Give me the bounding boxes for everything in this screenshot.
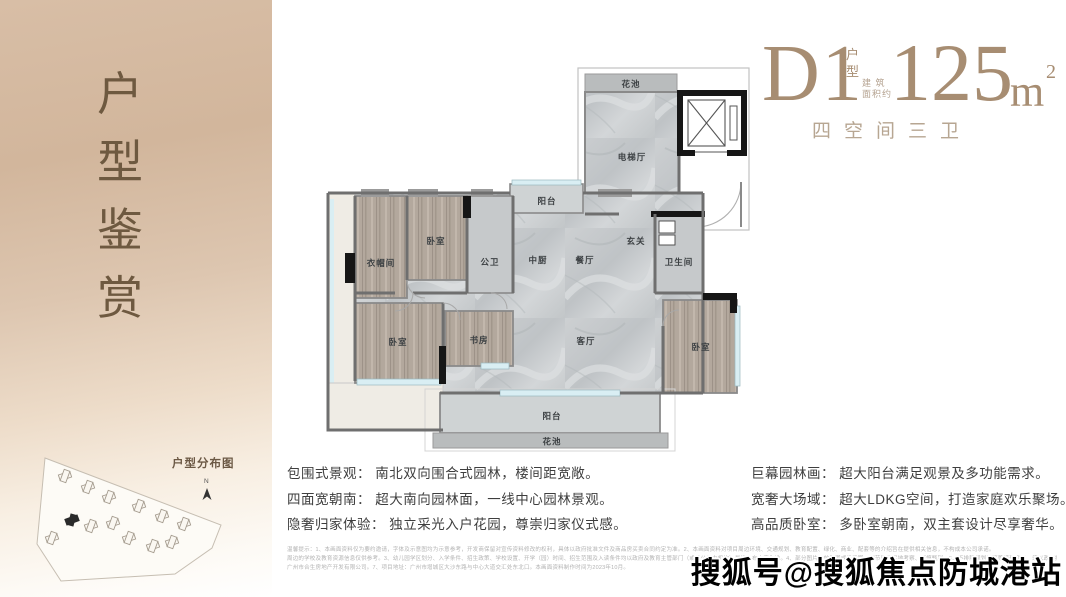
plan-subtitle: 四空间三卫: [812, 116, 972, 143]
feature-item: 包围式景观： 南北双向围合式园林，楼间距宽敞。: [287, 461, 627, 487]
feature-item: 高品质卧室： 多卧室朝南，双主套设计尽享奢华。: [751, 512, 1061, 538]
feature-item: 四面宽朝南： 超大南向园林面，一线中心园林景观。: [287, 487, 627, 513]
feature-item: 巨幕园林画： 超大阳台满足观景及多功能需求。: [751, 461, 1061, 487]
bath-niche: [659, 235, 675, 245]
area-prefix: 建 筑 面积约: [862, 78, 892, 100]
room-label-foyer: 玄关: [626, 236, 645, 246]
closet-floor: [355, 196, 407, 298]
page-title-char: 型: [97, 140, 143, 186]
window-living: [500, 390, 620, 396]
garden-southwest: [328, 383, 443, 430]
compass-icon: [203, 488, 212, 500]
plan-code-label: 户 型: [846, 48, 859, 78]
room-label-study: 书房: [469, 335, 488, 345]
watermark: 搜狐号@搜狐焦点防城港站: [691, 548, 1062, 592]
room-label-bedroom-west: 卧室: [388, 337, 407, 347]
feature-item: 宽奢大场域： 超大LDKG空间，打造家庭欢乐聚场。: [751, 487, 1061, 513]
room-label-bedroom-east: 卧室: [691, 342, 710, 352]
room-label-closet: 衣帽间: [367, 258, 396, 268]
sidebar: 户 型 鉴 赏: [0, 0, 272, 597]
compass-label: N: [204, 478, 209, 485]
area-unit: m: [1010, 70, 1044, 114]
room-label-balcony-north: 阳台: [537, 196, 556, 206]
page-title: 户 型 鉴 赏: [88, 72, 152, 322]
area-value: 125: [890, 32, 1013, 114]
page-title-char: 赏: [97, 276, 143, 322]
room-label-flowerbed-south: 花池: [542, 437, 561, 447]
bath-public-floor: [467, 196, 513, 293]
page: 户 型 鉴 赏: [0, 0, 1066, 597]
room-label-dining: 餐厅: [574, 255, 594, 265]
room-label-bath-public: 公卫: [480, 257, 499, 267]
plan-header: D1 户 型 建 筑 面积约 125 m 2 四空间三卫: [758, 30, 1058, 145]
plan-code-label-char: 户: [846, 48, 859, 61]
area-superscript: 2: [1046, 62, 1056, 82]
feature-list-right: 巨幕园林画： 超大阳台满足观景及多功能需求。 宽奢大场域： 超大LDKG空间，打…: [751, 461, 1061, 538]
window-west: [330, 199, 334, 399]
window-study: [481, 363, 509, 369]
feature-item: 隐奢归家体验： 独立采光入户花园，尊崇归家仪式感。: [287, 512, 627, 538]
feature-list-left: 包围式景观： 南北双向围合式园林，楼间距宽敞。 四面宽朝南： 超大南向园林面，一…: [287, 461, 627, 538]
wall-black-bath: [651, 211, 705, 217]
site-map: 户型分布图 N: [25, 440, 260, 592]
page-title-char: 户: [97, 72, 143, 118]
room-label-elevator-hall: 电梯厅: [618, 152, 647, 162]
site-map-title: 户型分布图: [172, 456, 235, 470]
page-title-char: 鉴: [97, 208, 143, 254]
room-label-bath-master: 卫生间: [665, 257, 694, 267]
elevator-icon: [677, 90, 747, 156]
window-balcony-north: [512, 180, 581, 185]
room-label-kitchen: 中厨: [528, 255, 547, 265]
room-label-balcony-south: 阳台: [542, 411, 561, 421]
floor-plan: 花池 电梯厅 阳台: [295, 48, 765, 463]
window-bedroom-west: [357, 379, 441, 385]
room-label-living: 客厅: [575, 336, 595, 346]
room-label-bedroom-north: 卧室: [426, 236, 445, 246]
bath-niche: [659, 221, 675, 233]
room-label-flowerbed-north: 花池: [621, 79, 640, 89]
window-bedroom-east: [735, 306, 740, 386]
plan-code-label-char: 型: [846, 65, 859, 78]
